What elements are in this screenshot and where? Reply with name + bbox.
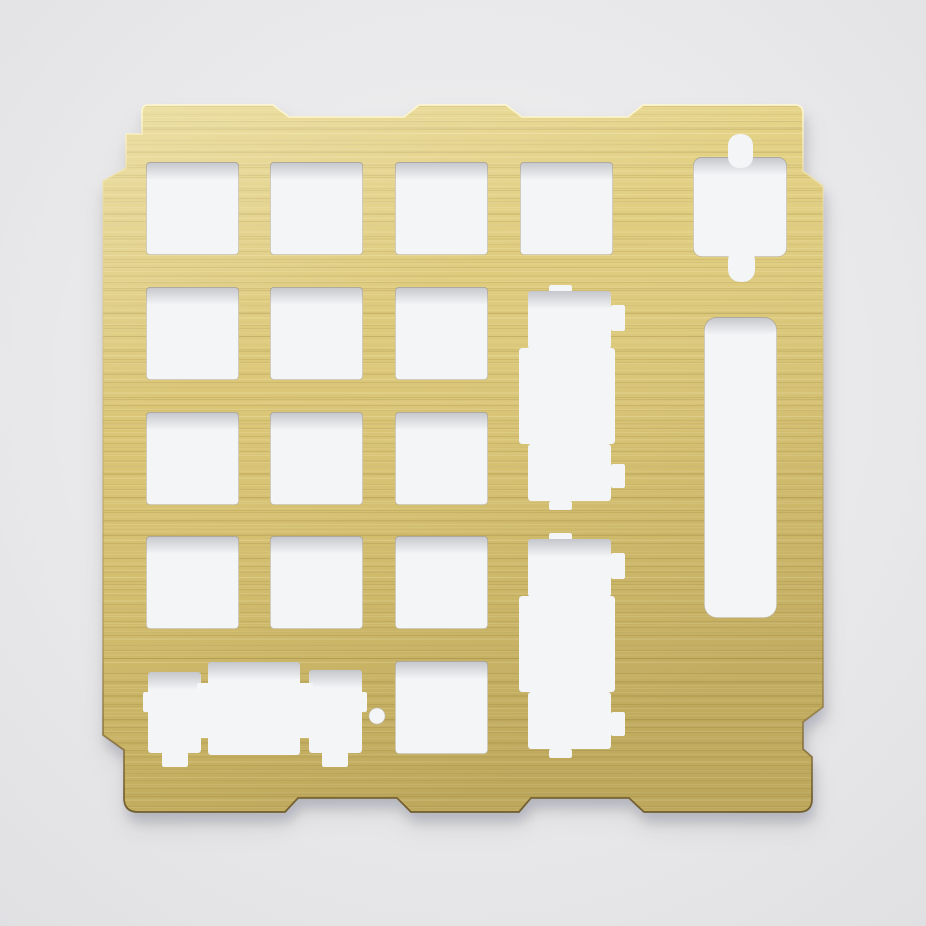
- brass-plate-body: [0, 0, 926, 926]
- brass-plate-photo: [0, 0, 926, 926]
- product-photo-canvas: [0, 0, 926, 926]
